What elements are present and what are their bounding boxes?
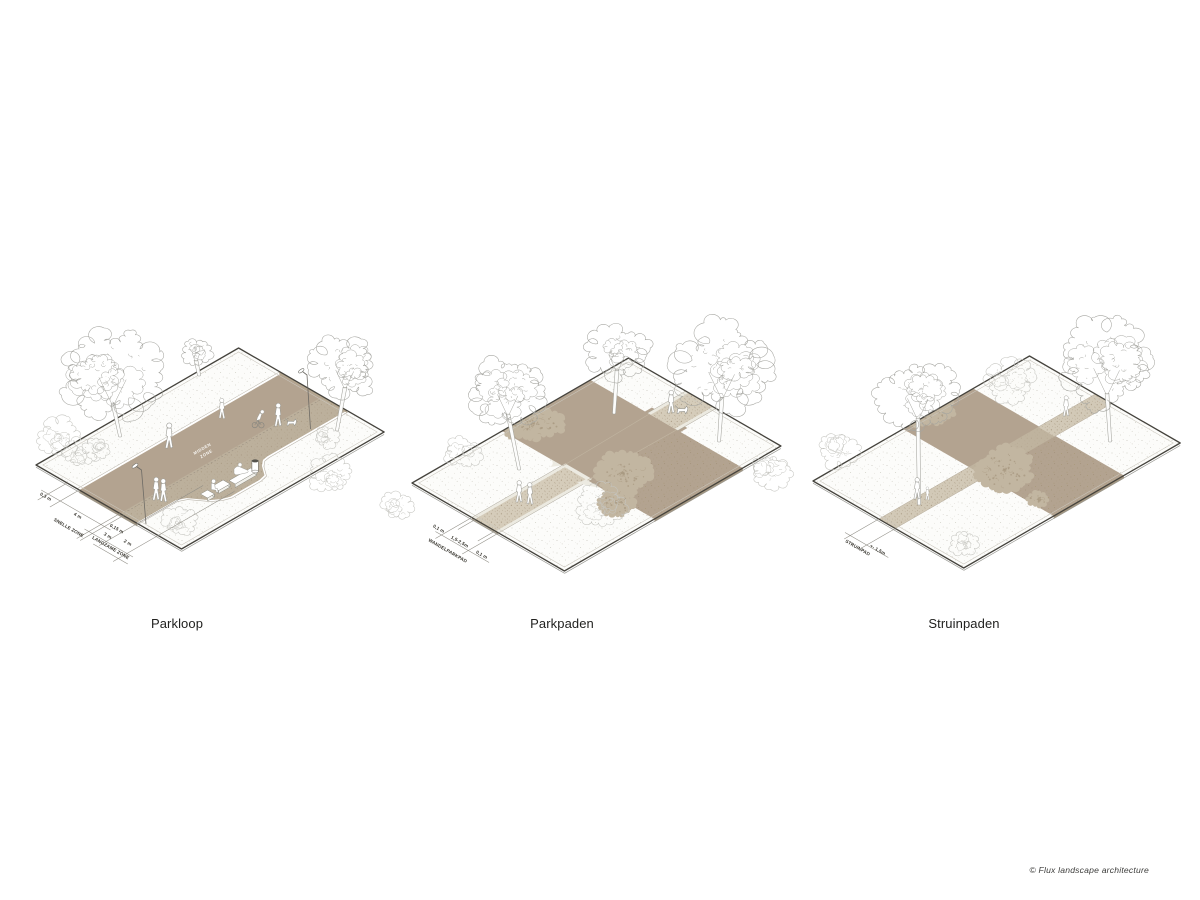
svg-text:Parkpaden: Parkpaden bbox=[530, 616, 594, 631]
svg-text:Parkloop: Parkloop bbox=[151, 616, 203, 631]
svg-text:© Flux landscape architecture: © Flux landscape architecture bbox=[1029, 865, 1149, 875]
svg-text:Struinpaden: Struinpaden bbox=[928, 616, 999, 631]
